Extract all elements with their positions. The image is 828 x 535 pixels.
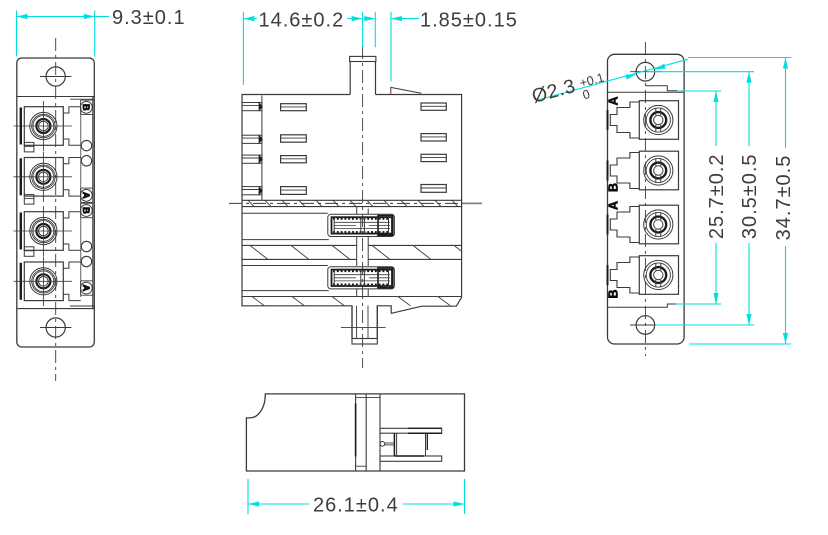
svg-text:A: A	[607, 201, 621, 210]
svg-text:1.85±0.15: 1.85±0.15	[420, 9, 518, 31]
svg-text:B: B	[607, 289, 621, 298]
svg-text:A: A	[607, 96, 621, 105]
svg-text:B: B	[80, 104, 91, 111]
svg-text:25.7±0.2: 25.7±0.2	[706, 153, 728, 239]
svg-text:A: A	[80, 285, 91, 292]
svg-text:34.7±0.5: 34.7±0.5	[773, 155, 795, 241]
svg-text:9.3±0.1: 9.3±0.1	[112, 7, 186, 29]
svg-text:30.5±0.5: 30.5±0.5	[739, 153, 761, 239]
svg-text:A: A	[80, 192, 91, 199]
svg-text:14.6±0.2: 14.6±0.2	[259, 9, 345, 31]
svg-text:B: B	[80, 207, 91, 214]
svg-text:B: B	[607, 183, 621, 192]
svg-text:26.1±0.4: 26.1±0.4	[313, 495, 399, 517]
